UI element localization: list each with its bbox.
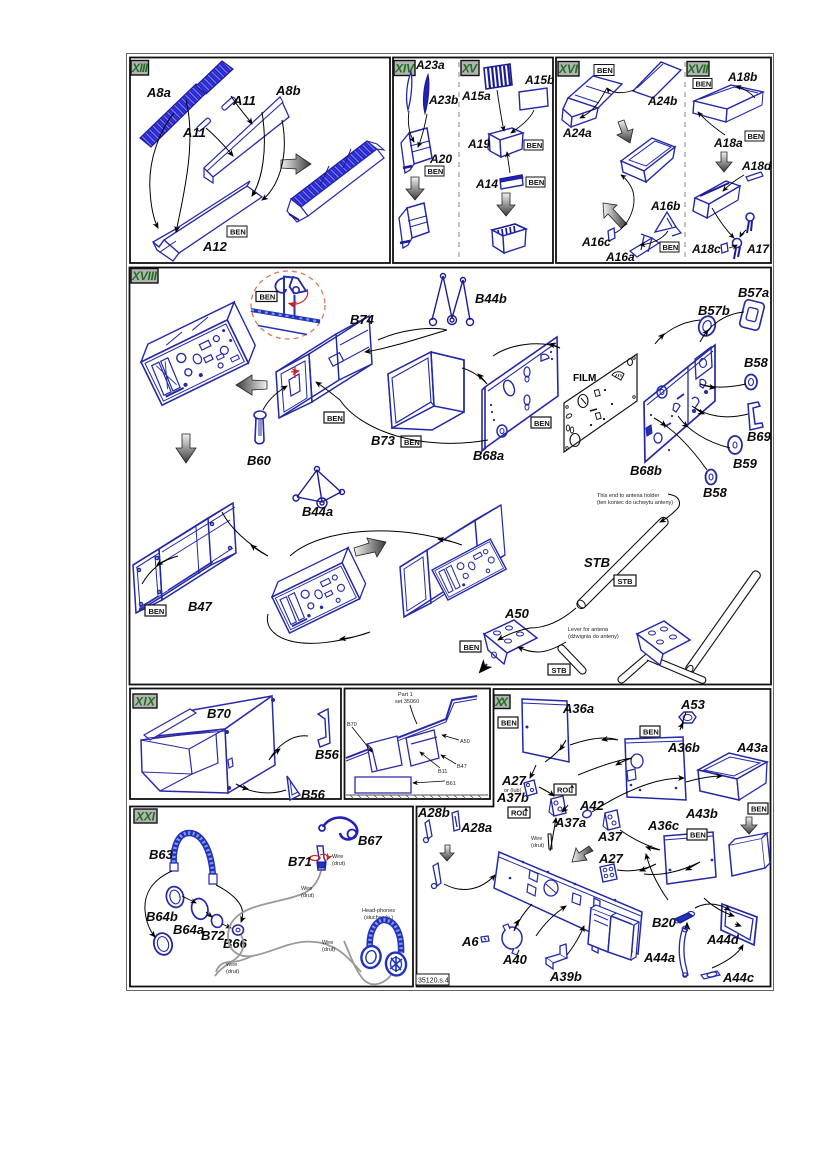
svg-text:STB: STB — [552, 666, 568, 675]
svg-text:A14: A14 — [475, 177, 498, 191]
svg-text:XVIII: XVIII — [131, 269, 158, 283]
svg-text:B47: B47 — [188, 599, 213, 614]
svg-text:BEN: BEN — [149, 607, 165, 616]
svg-text:A28b: A28b — [417, 805, 450, 820]
svg-text:XX: XX — [494, 695, 509, 709]
svg-text:BEN: BEN — [748, 132, 764, 141]
svg-text:BEN: BEN — [230, 228, 246, 237]
svg-text:35120.s.4: 35120.s.4 — [418, 978, 449, 985]
svg-text:B56: B56 — [315, 747, 340, 762]
svg-text:A36b: A36b — [667, 740, 700, 755]
svg-text:B57b: B57b — [698, 303, 730, 318]
svg-text:B68b: B68b — [630, 463, 662, 478]
svg-text:A23a: A23a — [415, 58, 445, 72]
svg-text:A6: A6 — [461, 934, 479, 949]
svg-text:A23b: A23b — [428, 93, 458, 107]
svg-text:B47: B47 — [457, 764, 467, 770]
svg-text:B67: B67 — [358, 833, 383, 848]
svg-text:A17: A17 — [746, 242, 770, 256]
svg-text:B74: B74 — [350, 312, 375, 327]
svg-text:A42: A42 — [579, 798, 605, 813]
svg-text:A16b: A16b — [650, 199, 680, 213]
svg-text:A50: A50 — [460, 739, 470, 745]
svg-text:(ten koniec do uchwytu anteny): (ten koniec do uchwytu anteny) — [597, 500, 673, 506]
svg-text:B58: B58 — [703, 485, 728, 500]
svg-text:A18b: A18b — [727, 70, 757, 84]
svg-text:B61: B61 — [446, 781, 456, 787]
svg-text:A16c: A16c — [581, 235, 611, 249]
svg-text:A27: A27 — [598, 851, 624, 866]
svg-text:B11: B11 — [438, 769, 447, 775]
svg-text:A40: A40 — [502, 952, 528, 967]
svg-text:STB: STB — [584, 555, 610, 570]
svg-text:Wire: Wire — [531, 836, 542, 842]
svg-text:XVII: XVII — [687, 62, 710, 76]
svg-text:BEN: BEN — [527, 141, 543, 150]
svg-text:B68a: B68a — [473, 448, 504, 463]
svg-text:BEN: BEN — [428, 167, 444, 176]
svg-text:Wire: Wire — [322, 940, 333, 946]
svg-text:FILM: FILM — [573, 373, 596, 384]
svg-text:A44a: A44a — [643, 950, 675, 965]
svg-text:A15b: A15b — [524, 73, 554, 87]
svg-text:A27: A27 — [501, 773, 527, 788]
svg-text:BEN: BEN — [663, 243, 679, 252]
svg-text:A36c: A36c — [647, 818, 680, 833]
svg-text:BEN: BEN — [501, 719, 517, 728]
svg-text:(drut): (drut) — [301, 893, 314, 899]
svg-text:A16a: A16a — [605, 250, 635, 264]
svg-text:(drut): (drut) — [332, 861, 345, 867]
svg-text:B56: B56 — [301, 787, 326, 802]
svg-text:A50: A50 — [504, 606, 530, 621]
svg-text:A12: A12 — [202, 239, 228, 254]
svg-text:BEN: BEN — [464, 643, 480, 652]
svg-text:A28a: A28a — [460, 820, 492, 835]
svg-text:BEN: BEN — [751, 805, 767, 814]
svg-text:B70: B70 — [207, 706, 232, 721]
svg-text:A15a: A15a — [461, 89, 491, 103]
svg-text:(dźwignia do anteny): (dźwignia do anteny) — [568, 634, 619, 640]
svg-text:STB: STB — [618, 577, 634, 586]
svg-text:Lever for antena: Lever for antena — [568, 627, 609, 633]
svg-text:B63: B63 — [149, 847, 174, 862]
svg-text:BEN: BEN — [643, 728, 659, 737]
svg-text:B44a: B44a — [302, 504, 333, 519]
svg-text:A37a: A37a — [554, 815, 586, 830]
svg-text:A11: A11 — [232, 93, 256, 108]
svg-text:B60: B60 — [247, 453, 272, 468]
svg-text:A18c: A18c — [691, 242, 721, 256]
svg-text:BEN: BEN — [529, 178, 545, 187]
svg-text:Head-phones: Head-phones — [362, 908, 395, 914]
svg-text:A44d: A44d — [706, 932, 740, 947]
svg-text:BEN: BEN — [597, 66, 613, 75]
svg-text:A36a: A36a — [562, 701, 594, 716]
svg-text:XVI: XVI — [558, 62, 579, 76]
svg-text:A24a: A24a — [562, 126, 592, 140]
svg-text:A8b: A8b — [275, 83, 301, 98]
svg-text:A18a: A18a — [713, 136, 743, 150]
svg-text:A24b: A24b — [647, 94, 677, 108]
svg-text:A18d: A18d — [741, 159, 772, 173]
svg-text:BEN: BEN — [690, 831, 706, 840]
svg-text:A37b: A37b — [496, 790, 529, 805]
svg-text:XIII: XIII — [131, 61, 149, 75]
svg-text:Part 1: Part 1 — [398, 692, 413, 698]
svg-text:A53: A53 — [680, 697, 706, 712]
svg-text:A44c: A44c — [722, 970, 755, 985]
svg-text:A43b: A43b — [685, 806, 718, 821]
svg-text:A11: A11 — [182, 125, 206, 140]
svg-text:B57a: B57a — [738, 285, 769, 300]
svg-text:BEN: BEN — [260, 293, 276, 302]
svg-text:(drut): (drut) — [226, 969, 239, 975]
svg-text:B58: B58 — [744, 355, 769, 370]
svg-text:This end to antena holder: This end to antena holder — [597, 493, 660, 499]
svg-text:B59: B59 — [733, 456, 758, 471]
svg-text:Wire: Wire — [332, 854, 343, 860]
svg-text:B64a: B64a — [173, 922, 204, 937]
svg-text:XXI: XXI — [135, 810, 156, 824]
svg-text:A8a: A8a — [146, 85, 171, 100]
svg-text:B20: B20 — [652, 915, 677, 930]
svg-text:A39b: A39b — [549, 969, 582, 984]
svg-text:set 35060: set 35060 — [395, 699, 419, 705]
svg-text:B44b: B44b — [475, 291, 507, 306]
svg-text:(drut): (drut) — [322, 947, 335, 953]
svg-text:A20: A20 — [429, 152, 452, 166]
svg-text:BEN: BEN — [696, 80, 712, 89]
svg-text:XV: XV — [461, 62, 478, 76]
svg-text:B69: B69 — [747, 429, 772, 444]
svg-text:(drut): (drut) — [531, 843, 544, 849]
svg-text:A43a: A43a — [736, 740, 768, 755]
svg-text:Wire: Wire — [301, 886, 312, 892]
svg-text:B73: B73 — [371, 433, 396, 448]
svg-text:B71: B71 — [288, 854, 312, 869]
svg-text:BEN: BEN — [534, 419, 550, 428]
svg-text:A19: A19 — [467, 137, 490, 151]
svg-text:XIX: XIX — [134, 695, 156, 709]
svg-text:B72: B72 — [201, 928, 226, 943]
svg-text:BEN: BEN — [327, 414, 343, 423]
svg-text:A37: A37 — [597, 829, 623, 844]
